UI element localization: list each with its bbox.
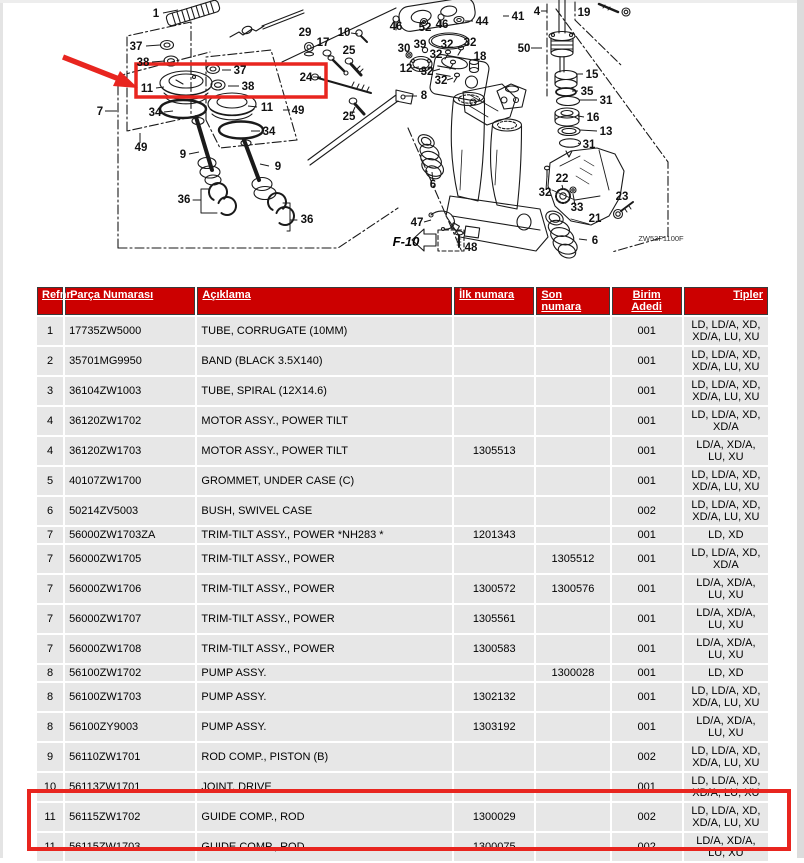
- column-header-part-no[interactable]: Parça Numarası: [65, 287, 195, 315]
- exploded-parts-diagram: 1373811734499363738114934936291710252425…: [0, 0, 804, 282]
- table-row: 756000ZW1703ZATRIM-TILT ASSY., POWER *NH…: [37, 527, 768, 543]
- cell-part-no: 36120ZW1703: [65, 437, 195, 465]
- part-callout-11: 11: [261, 102, 274, 114]
- page-edge-right: [797, 0, 804, 858]
- cell-birim: 001: [612, 665, 682, 681]
- cell-tipler: LD, LD/A, XD, XD/A, LU, XU: [684, 377, 768, 405]
- cell-son: [536, 527, 609, 543]
- cell-son: [536, 317, 609, 345]
- leader-line: [580, 130, 597, 131]
- cell-birim: 001: [612, 437, 682, 465]
- cell-refnr: 4: [37, 407, 63, 435]
- cell-refnr: 8: [37, 713, 63, 741]
- cell-tipler: LD/A, XD/A, LU, XU: [684, 575, 768, 603]
- part-callout-6: 6: [430, 179, 436, 191]
- cylinder-bolt: [599, 4, 630, 16]
- leader-line: [189, 152, 199, 154]
- part-callout-18: 18: [474, 51, 487, 63]
- cell-refnr: 10: [37, 773, 63, 801]
- part-callout-16: 16: [587, 112, 600, 124]
- corrugated-tube: [165, 0, 220, 27]
- cell-ilk: 1303192: [454, 713, 534, 741]
- leader-line: [433, 69, 440, 71]
- cell-birim: 002: [612, 497, 682, 525]
- cell-refnr: 7: [37, 605, 63, 633]
- part-callout-38: 38: [242, 81, 255, 93]
- cell-desc: TUBE, CORRUGATE (10MM): [197, 317, 452, 345]
- cell-son: 1300028: [536, 665, 609, 681]
- cell-tipler: LD, LD/A, XD, XD/A, LU, XU: [684, 743, 768, 771]
- tilt-cylinder-parts: [549, 0, 581, 157]
- part-callout-47: 47: [411, 217, 424, 229]
- cell-birim: 001: [612, 545, 682, 573]
- highlight-arrow: [63, 57, 119, 79]
- cell-ilk: [454, 407, 534, 435]
- cell-birim: 001: [612, 683, 682, 711]
- leader-line: [152, 61, 165, 62]
- part-callout-9: 9: [180, 149, 186, 161]
- cell-part-no: 36104ZW1003: [65, 377, 195, 405]
- cell-birim: 001: [612, 575, 682, 603]
- leader-line: [424, 220, 431, 222]
- cell-tipler: LD, LD/A, XD, XD/A: [684, 407, 768, 435]
- cell-part-no: 56000ZW1705: [65, 545, 195, 573]
- cell-tipler: LD, LD/A, XD, XD/A, LU, XU: [684, 347, 768, 375]
- cell-refnr: 9: [37, 743, 63, 771]
- cell-part-no: 56000ZW1707: [65, 605, 195, 633]
- cell-birim: 001: [612, 407, 682, 435]
- cell-refnr: 1: [37, 317, 63, 345]
- table-row: 956110ZW1701ROD COMP., PISTON (B)002LD, …: [37, 743, 768, 771]
- cell-son: [536, 683, 609, 711]
- cell-ilk: [454, 377, 534, 405]
- part-callout-52: 52: [419, 22, 432, 34]
- cell-refnr: 8: [37, 683, 63, 711]
- part-callout-37: 37: [234, 65, 247, 77]
- cell-tipler: LD/A, XD/A, LU, XU: [684, 635, 768, 663]
- cell-tipler: LD, LD/A, XD, XD/A, LU, XU: [684, 683, 768, 711]
- cell-refnr: 3: [37, 377, 63, 405]
- table-row: 756000ZW1707TRIM-TILT ASSY., POWER130556…: [37, 605, 768, 633]
- part-callout-7: 7: [97, 106, 103, 118]
- cell-part-no: 56110ZW1701: [65, 743, 195, 771]
- cell-son: [536, 833, 609, 861]
- part-callout-21: 21: [589, 213, 602, 225]
- part-callout-32: 32: [441, 39, 454, 51]
- part-callout-12: 12: [400, 63, 413, 75]
- part-callout-23: 23: [616, 191, 629, 203]
- cell-ilk: [454, 743, 534, 771]
- cell-son: [536, 407, 609, 435]
- swivel-case-bush-left: [405, 132, 455, 182]
- cell-desc: TRIM-TILT ASSY., POWER: [197, 545, 452, 573]
- cell-ilk: [454, 497, 534, 525]
- cell-refnr: 5: [37, 467, 63, 495]
- cell-desc: TUBE, SPIRAL (12X14.6): [197, 377, 452, 405]
- cell-tipler: LD/A, XD/A, LU, XU: [684, 833, 768, 861]
- part-callout-8: 8: [421, 90, 428, 102]
- part-callout-10: 10: [338, 27, 351, 39]
- leader-line: [351, 33, 358, 34]
- cell-tipler: LD, LD/A, XD, XD/A, LU, XU: [684, 317, 768, 345]
- cell-birim: 002: [612, 743, 682, 771]
- part-callout-17: 17: [317, 37, 330, 49]
- cell-part-no: 56100ZW1703: [65, 683, 195, 711]
- leader-line: [260, 164, 269, 166]
- cell-ilk: 1300075: [454, 833, 534, 861]
- part-callout-36: 36: [301, 214, 314, 226]
- cell-birim: 001: [612, 713, 682, 741]
- cell-ilk: [454, 347, 534, 375]
- cell-birim: 001: [612, 377, 682, 405]
- cell-part-no: 56113ZW1701: [65, 773, 195, 801]
- cell-desc: PUMP ASSY.: [197, 713, 452, 741]
- cell-tipler: LD, LD/A, XD, XD/A, LU, XU: [684, 497, 768, 525]
- part-callout-19: 19: [578, 7, 591, 19]
- cell-tipler: LD, LD/A, XD, XD/A, LU, XU: [684, 773, 768, 801]
- part-callout-11: 11: [141, 83, 154, 95]
- cell-birim: 001: [612, 317, 682, 345]
- part-callout-31: 31: [583, 139, 596, 151]
- cell-son: [536, 347, 609, 375]
- part-callout-32: 32: [421, 66, 434, 78]
- cell-part-no: 56000ZW1703ZA: [65, 527, 195, 543]
- table-row: 756000ZW1705TRIM-TILT ASSY., POWER130551…: [37, 545, 768, 573]
- swivel-case: [446, 84, 548, 251]
- part-callout-39: 39: [414, 39, 427, 51]
- cell-desc: TRIM-TILT ASSY., POWER: [197, 575, 452, 603]
- part-callout-29: 29: [299, 27, 312, 39]
- cell-refnr: 2: [37, 347, 63, 375]
- cell-tipler: LD, LD/A, XD, XD/A, LU, XU: [684, 803, 768, 831]
- part-callout-33: 33: [571, 202, 584, 214]
- cell-ilk: 1300572: [454, 575, 534, 603]
- part-callout-13: 13: [600, 126, 613, 138]
- cell-part-no: 56000ZW1708: [65, 635, 195, 663]
- cell-birim: 001: [612, 347, 682, 375]
- cell-ilk: 1305513: [454, 437, 534, 465]
- cell-tipler: LD, XD: [684, 527, 768, 543]
- part-callout-25: 25: [343, 111, 356, 123]
- cell-tipler: LD, LD/A, XD, XD/A: [684, 545, 768, 573]
- leader-line: [146, 45, 160, 46]
- cell-birim: 002: [612, 833, 682, 861]
- cell-desc: GROMMET, UNDER CASE (C): [197, 467, 452, 495]
- cell-birim: 002: [612, 803, 682, 831]
- table-row: 856100ZW1703PUMP ASSY.1302132001LD, LD/A…: [37, 683, 768, 711]
- cell-son: [536, 497, 609, 525]
- cell-desc: MOTOR ASSY., POWER TILT: [197, 407, 452, 435]
- cell-part-no: 40107ZW1700: [65, 467, 195, 495]
- part-callout-9: 9: [275, 161, 281, 173]
- cell-ilk: 1300029: [454, 803, 534, 831]
- cell-part-no: 56115ZW1703: [65, 833, 195, 861]
- cell-desc: BUSH, SWIVEL CASE: [197, 497, 452, 525]
- part-callout-22: 22: [556, 173, 569, 185]
- cell-son: 1300576: [536, 575, 609, 603]
- page-ref-label: F-10: [393, 234, 421, 249]
- cell-ilk: [454, 545, 534, 573]
- part-callout-34: 34: [263, 126, 276, 138]
- leader-line: [412, 67, 419, 68]
- cell-desc: ROD COMP., PISTON (B): [197, 743, 452, 771]
- cell-ilk: [454, 467, 534, 495]
- cell-desc: TRIM-TILT ASSY., POWER: [197, 605, 452, 633]
- part-callout-30: 30: [398, 43, 411, 55]
- table-row: 1156115ZW1702GUIDE COMP., ROD1300029002L…: [37, 803, 768, 831]
- table-row: 540107ZW1700GROMMET, UNDER CASE (C)001LD…: [37, 467, 768, 495]
- cell-refnr: 11: [37, 833, 63, 861]
- cell-part-no: 35701MG9950: [65, 347, 195, 375]
- part-callout-41: 41: [512, 11, 525, 23]
- part-callout-25: 25: [343, 45, 356, 57]
- cell-ilk: 1302132: [454, 683, 534, 711]
- cell-tipler: LD/A, XD/A, LU, XU: [684, 437, 768, 465]
- leader-line: [164, 111, 173, 112]
- cell-son: [536, 773, 609, 801]
- column-header-son[interactable]: Son numara: [536, 287, 609, 315]
- cell-desc: PUMP ASSY.: [197, 665, 452, 681]
- cell-son: [536, 713, 609, 741]
- cell-desc: MOTOR ASSY., POWER TILT: [197, 437, 452, 465]
- table-row: 1056113ZW1701JOINT, DRIVE001LD, LD/A, XD…: [37, 773, 768, 801]
- cell-refnr: 7: [37, 575, 63, 603]
- part-callouts: 1373811734499363738114934936291710252425…: [97, 6, 684, 254]
- cell-son: [536, 437, 609, 465]
- cell-son: [536, 377, 609, 405]
- leader-line: [578, 143, 580, 144]
- table-row: 117735ZW5000TUBE, CORRUGATE (10MM)001LD,…: [37, 317, 768, 345]
- part-callout-1: 1: [153, 8, 160, 20]
- table-row: 336104ZW1003TUBE, SPIRAL (12X14.6)001LD,…: [37, 377, 768, 405]
- parts-catalog-page: { "colors": { "header_bg": "#cc0000", "h…: [0, 0, 804, 858]
- cell-desc: GUIDE COMP., ROD: [197, 803, 452, 831]
- guide-comp-rod-left: [160, 41, 239, 218]
- column-header-birim[interactable]: Birim Adedi: [612, 287, 682, 315]
- part-callout-4: 4: [534, 6, 541, 18]
- cell-part-no: 36120ZW1702: [65, 407, 195, 435]
- table-row: 436120ZW1702MOTOR ASSY., POWER TILT001LD…: [37, 407, 768, 435]
- part-callout-48: 48: [465, 242, 478, 254]
- part-callout-50: 50: [518, 43, 531, 55]
- cell-birim: 001: [612, 527, 682, 543]
- part-callout-37: 37: [130, 41, 143, 53]
- cell-desc: JOINT, DRIVE: [197, 773, 452, 801]
- table-row: 756000ZW1706TRIM-TILT ASSY., POWER130057…: [37, 575, 768, 603]
- cell-desc: TRIM-TILT ASSY., POWER *NH283 *: [197, 527, 452, 543]
- cell-ilk: [454, 773, 534, 801]
- cell-son: [536, 635, 609, 663]
- table-row: 756000ZW1708TRIM-TILT ASSY., POWER130058…: [37, 635, 768, 663]
- column-header-tipler[interactable]: Tipler: [684, 287, 768, 315]
- part-callout-36: 36: [178, 194, 191, 206]
- diagram-highlight-box: [136, 64, 326, 97]
- parts-table-container: RefnrParça NumarasıAçıklamaİlk numaraSon…: [35, 285, 770, 863]
- table-row: 856100ZY9003PUMP ASSY.1303192001LD/A, XD…: [37, 713, 768, 741]
- joint-plate: [308, 90, 413, 165]
- table-row: 650214ZV5003BUSH, SWIVEL CASE002LD, LD/A…: [37, 497, 768, 525]
- column-header-desc[interactable]: Açıklama: [197, 287, 452, 315]
- cell-ilk: 1300583: [454, 635, 534, 663]
- cell-tipler: LD/A, XD/A, LU, XU: [684, 605, 768, 633]
- cell-part-no: 50214ZV5003: [65, 497, 195, 525]
- cell-part-no: 17735ZW5000: [65, 317, 195, 345]
- table-row: 436120ZW1703MOTOR ASSY., POWER TILT13055…: [37, 437, 768, 465]
- part-callout-46: 46: [390, 21, 403, 33]
- cell-son: 1305512: [536, 545, 609, 573]
- cell-desc: BAND (BLACK 3.5X140): [197, 347, 452, 375]
- part-callout-44: 44: [476, 16, 489, 28]
- cell-refnr: 8: [37, 665, 63, 681]
- part-callout-32: 32: [539, 187, 552, 199]
- part-callout-6: 6: [592, 235, 598, 247]
- part-callout-15: 15: [586, 69, 599, 81]
- cell-ilk: [454, 665, 534, 681]
- valves-and-bolts: [305, 30, 372, 114]
- column-header-refnr[interactable]: Refnr: [37, 287, 63, 315]
- cell-part-no: 56100ZW1702: [65, 665, 195, 681]
- cell-refnr: 4: [37, 437, 63, 465]
- table-row: 235701MG9950BAND (BLACK 3.5X140)001LD, L…: [37, 347, 768, 375]
- cell-desc: PUMP ASSY.: [197, 683, 452, 711]
- cell-part-no: 56000ZW1706: [65, 575, 195, 603]
- part-callout-24: 24: [300, 72, 313, 84]
- cell-birim: 001: [612, 605, 682, 633]
- part-callout-46: 46: [436, 19, 449, 31]
- cell-refnr: 11: [37, 803, 63, 831]
- leader-line: [447, 78, 453, 80]
- cell-desc: TRIM-TILT ASSY., POWER: [197, 635, 452, 663]
- table-header-row: RefnrParça NumarasıAçıklamaİlk numaraSon…: [37, 287, 768, 315]
- cell-tipler: LD, XD: [684, 665, 768, 681]
- figure-code: ZW53F1100F: [638, 234, 684, 243]
- part-callout-32: 32: [430, 49, 443, 61]
- cell-son: [536, 467, 609, 495]
- cell-birim: 001: [612, 635, 682, 663]
- table-row: 1156115ZW1703GUIDE COMP., ROD1300075002L…: [37, 833, 768, 861]
- part-callout-38: 38: [137, 57, 150, 69]
- cell-part-no: 56100ZY9003: [65, 713, 195, 741]
- part-callout-34: 34: [149, 107, 162, 119]
- cell-tipler: LD/A, XD/A, LU, XU: [684, 713, 768, 741]
- cell-desc: GUIDE COMP., ROD: [197, 833, 452, 861]
- leader-line: [579, 239, 587, 240]
- part-callout-31: 31: [600, 95, 613, 107]
- cell-son: [536, 803, 609, 831]
- cell-refnr: 6: [37, 497, 63, 525]
- cell-birim: 001: [612, 467, 682, 495]
- cell-birim: 001: [612, 773, 682, 801]
- cell-son: [536, 743, 609, 771]
- cell-ilk: 1305561: [454, 605, 534, 633]
- table-row: 856100ZW1702PUMP ASSY.1300028001LD, XD: [37, 665, 768, 681]
- column-header-ilk[interactable]: İlk numara: [454, 287, 534, 315]
- cell-refnr: 7: [37, 545, 63, 573]
- cell-tipler: LD, LD/A, XD, XD/A, LU, XU: [684, 467, 768, 495]
- part-callout-49: 49: [135, 142, 148, 154]
- parts-table: RefnrParça NumarasıAçıklamaİlk numaraSon…: [35, 285, 770, 863]
- cell-refnr: 7: [37, 635, 63, 663]
- cell-part-no: 56115ZW1702: [65, 803, 195, 831]
- cell-ilk: 1201343: [454, 527, 534, 543]
- cell-refnr: 7: [37, 527, 63, 543]
- part-callout-32: 32: [464, 37, 477, 49]
- part-callout-49: 49: [292, 105, 305, 117]
- part-callout-35: 35: [581, 86, 594, 98]
- cell-son: [536, 605, 609, 633]
- cell-ilk: [454, 317, 534, 345]
- part-callout-32: 32: [435, 75, 448, 87]
